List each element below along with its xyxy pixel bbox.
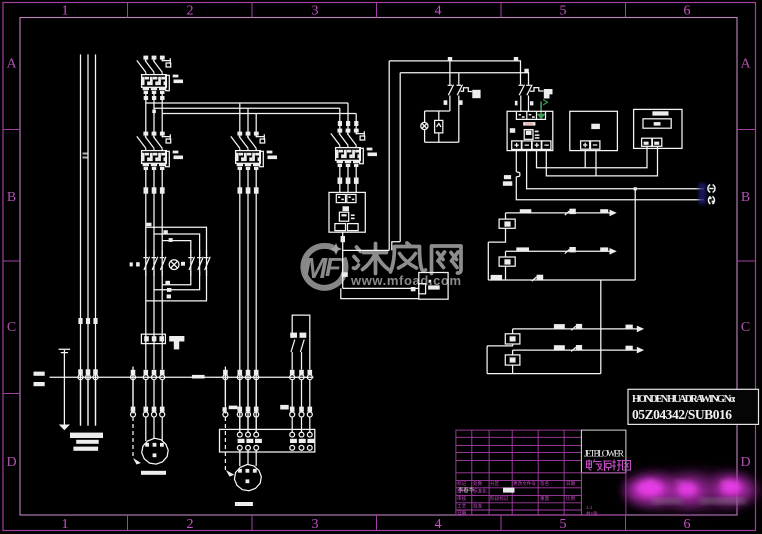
svg-text:工艺: 工艺 xyxy=(457,503,467,508)
svg-text:B: B xyxy=(741,190,750,205)
svg-text:D: D xyxy=(740,455,750,470)
svg-text:重量: 重量 xyxy=(540,495,550,502)
svg-text:签名: 签名 xyxy=(540,480,549,487)
svg-text:6: 6 xyxy=(684,517,691,532)
svg-text:5: 5 xyxy=(560,4,567,19)
svg-text:3: 3 xyxy=(312,4,319,19)
svg-text:3: 3 xyxy=(312,517,319,532)
svg-text:6: 6 xyxy=(684,4,691,19)
svg-text:批准: 批准 xyxy=(473,502,483,509)
svg-text:F: F xyxy=(325,252,342,282)
svg-text:C: C xyxy=(7,320,16,335)
svg-text:2: 2 xyxy=(187,4,194,19)
svg-text:更改文件号: 更改文件号 xyxy=(513,480,536,487)
svg-text:B: B xyxy=(7,190,16,205)
svg-text:4: 4 xyxy=(435,517,442,532)
svg-text:05Z04342/SUB016: 05Z04342/SUB016 xyxy=(632,407,732,422)
svg-text:HONDEN HUA DRAWING No:: HONDEN HUA DRAWING No: xyxy=(632,394,736,405)
svg-text:阶段标记: 阶段标记 xyxy=(490,495,509,502)
svg-text:处数: 处数 xyxy=(473,480,483,487)
svg-text:标准化: 标准化 xyxy=(473,488,487,495)
svg-text:A: A xyxy=(740,57,751,72)
svg-text:审核: 审核 xyxy=(457,495,467,502)
svg-text:标记: 标记 xyxy=(457,480,467,487)
svg-text:C: C xyxy=(741,320,750,335)
svg-text:1:1: 1:1 xyxy=(586,505,593,510)
svg-text:JETBLOWER: JETBLOWER xyxy=(584,450,625,460)
svg-text:1817: 1817 xyxy=(720,480,731,486)
svg-text:85: 85 xyxy=(648,480,654,486)
svg-text:A: A xyxy=(6,57,17,72)
svg-text:比例: 比例 xyxy=(566,495,576,502)
svg-text:1: 1 xyxy=(62,517,69,532)
svg-text:5: 5 xyxy=(560,517,567,532)
svg-text:2: 2 xyxy=(187,517,194,532)
svg-text:1: 1 xyxy=(62,4,69,19)
svg-text:共1张: 共1张 xyxy=(586,510,598,517)
svg-text:分区: 分区 xyxy=(490,480,500,487)
svg-text:李春华: 李春华 xyxy=(458,486,475,494)
svg-text:www.mfoad.com: www.mfoad.com xyxy=(350,273,462,288)
svg-text:D: D xyxy=(6,455,16,470)
svg-text:1891: 1891 xyxy=(674,480,685,486)
svg-text:4: 4 xyxy=(435,4,442,19)
